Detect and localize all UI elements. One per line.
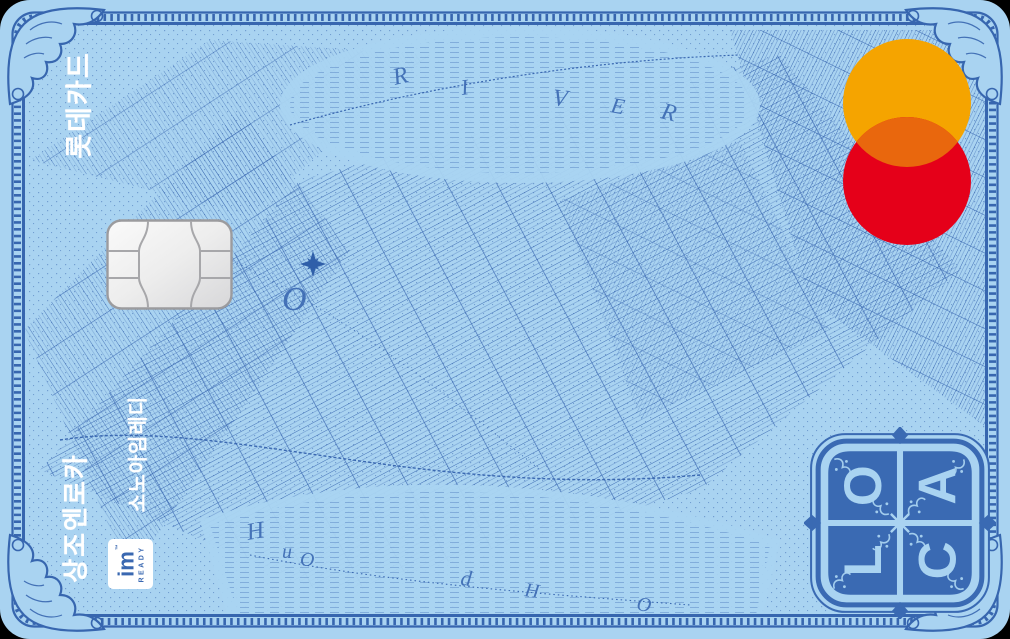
im-ready-badge: im™ READY bbox=[108, 539, 153, 589]
partner-name-vertical: 소노아임레디 bbox=[122, 396, 151, 512]
loca-letter-o: O bbox=[834, 465, 893, 506]
loca-letter-c: C bbox=[909, 541, 968, 579]
loca-letter-l: L bbox=[834, 544, 893, 576]
map-letter: O bbox=[282, 281, 307, 318]
loca-logo: L O C A bbox=[804, 427, 996, 619]
map-letter: O bbox=[300, 549, 314, 571]
im-ready-logo-icon: im™ bbox=[115, 551, 137, 577]
issuer-name-vertical: 롯데카드 bbox=[58, 51, 97, 158]
ready-label: READY bbox=[138, 545, 145, 582]
loca-letter-a: A bbox=[909, 467, 968, 505]
product-name-vertical: 상조엔로카 bbox=[56, 453, 93, 583]
trademark-symbol: ™ bbox=[115, 544, 121, 550]
screenshot-stage: R I V E R O H u O d H O bbox=[0, 0, 1010, 639]
map-letter: u bbox=[282, 541, 292, 563]
emv-chip-icon bbox=[106, 219, 233, 310]
mastercard-circles-icon bbox=[835, 31, 980, 253]
map-letter: O bbox=[635, 593, 652, 617]
credit-card: R I V E R O H u O d H O bbox=[0, 0, 1010, 639]
